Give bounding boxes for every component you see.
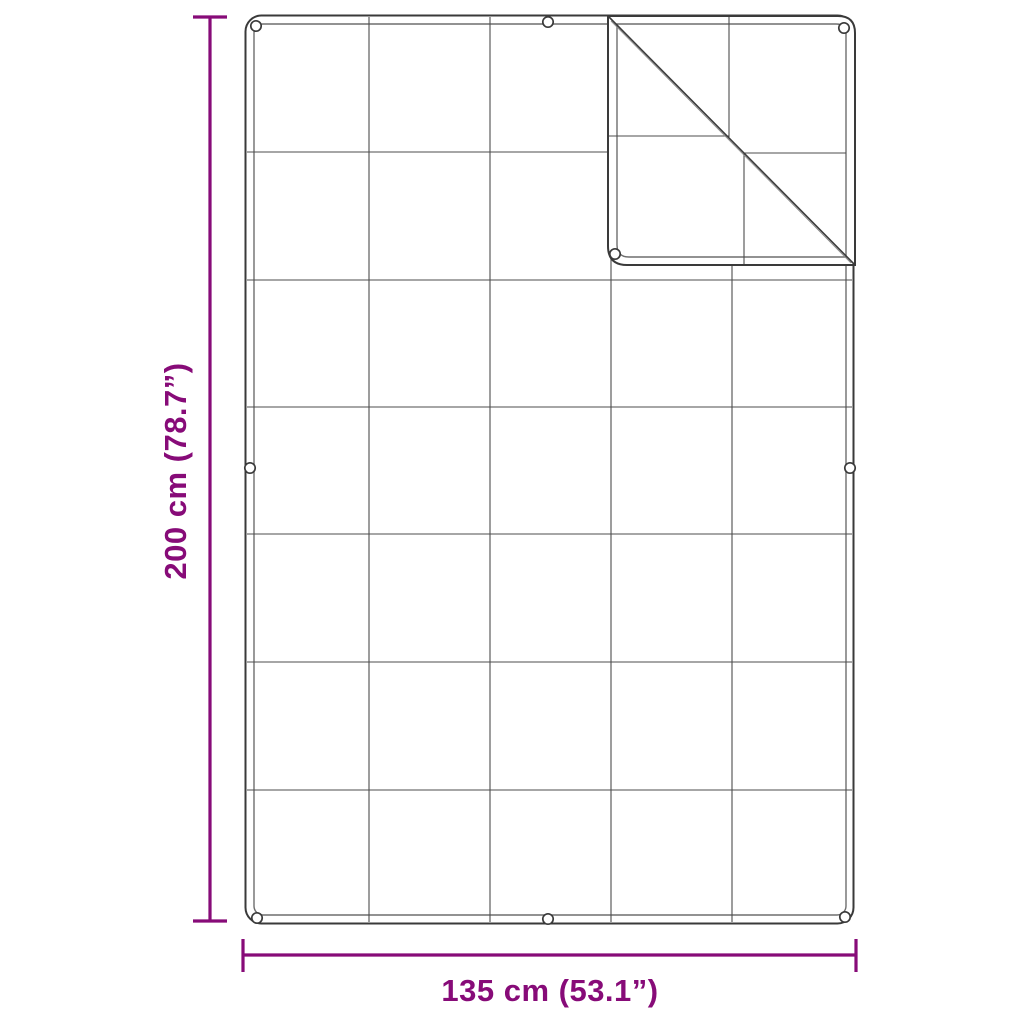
tarp-dimension-diagram: 200 cm (78.7”) 135 cm (53.1”) <box>0 0 1024 1024</box>
grommet-bottom-right <box>840 912 850 922</box>
grommet-top-left <box>251 21 261 31</box>
grommet-top-center <box>543 17 553 27</box>
width-dimension-line <box>243 939 856 972</box>
grommet-bottom-center <box>543 914 553 924</box>
product-diagram-canvas: 200 cm (78.7”) 135 cm (53.1”) <box>0 0 1024 1024</box>
height-dimension-line <box>193 17 227 921</box>
grommet-flap-bottom-left <box>610 249 620 259</box>
grommet-left-middle <box>245 463 255 473</box>
folded-corner-flap <box>608 16 855 265</box>
grommet-flap-top-right <box>839 23 849 33</box>
grommet-bottom-left <box>252 913 262 923</box>
width-dimension-label: 135 cm (53.1”) <box>441 973 658 1008</box>
grommet-right-middle <box>845 463 855 473</box>
height-dimension-label: 200 cm (78.7”) <box>158 362 193 579</box>
